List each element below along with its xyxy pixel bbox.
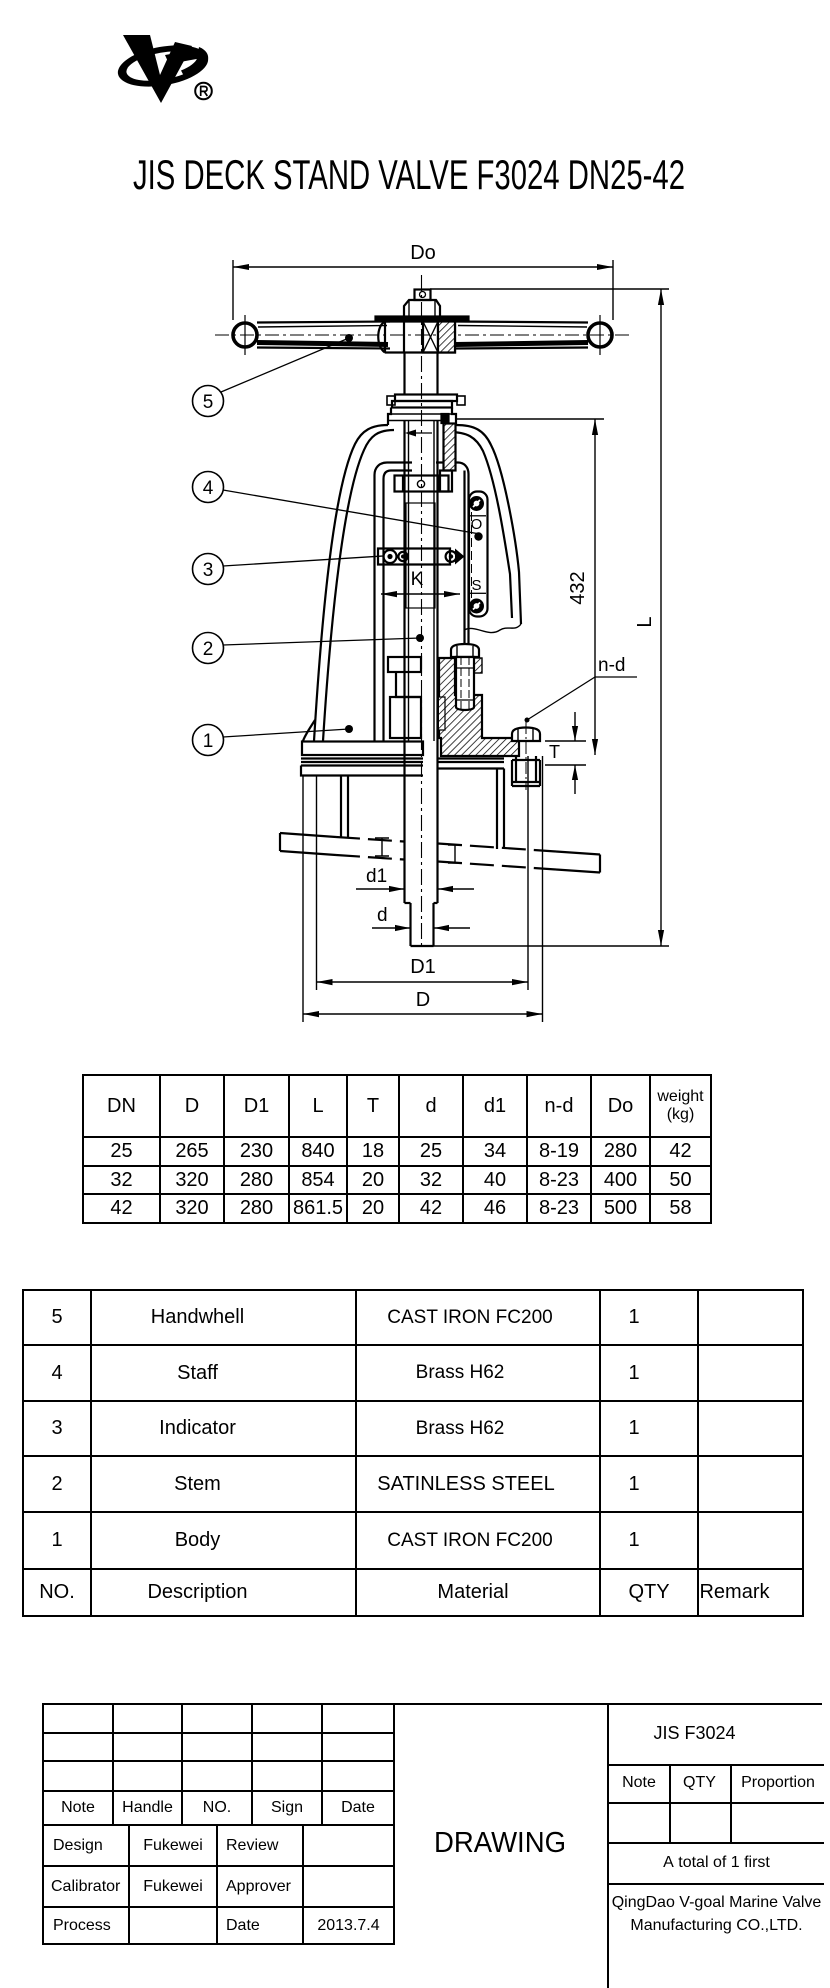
svg-text:432: 432 bbox=[567, 571, 589, 604]
svg-text:d1: d1 bbox=[366, 866, 387, 887]
svg-text:d: d bbox=[377, 905, 388, 926]
svg-text:n-d: n-d bbox=[598, 655, 625, 676]
svg-text:4: 4 bbox=[203, 478, 214, 499]
svg-text:DRAWING: DRAWING bbox=[434, 1827, 566, 1859]
svg-text:3: 3 bbox=[203, 560, 214, 581]
svg-text:S: S bbox=[471, 577, 481, 594]
svg-text:5: 5 bbox=[203, 392, 214, 413]
svg-text:D1: D1 bbox=[410, 956, 436, 978]
svg-text:1: 1 bbox=[203, 731, 214, 752]
svg-text:D: D bbox=[416, 989, 430, 1011]
svg-text:L: L bbox=[634, 616, 656, 627]
svg-text:T: T bbox=[549, 742, 560, 762]
svg-text:2: 2 bbox=[203, 639, 214, 660]
svg-text:O: O bbox=[471, 516, 483, 533]
svg-text:Do: Do bbox=[410, 242, 436, 264]
